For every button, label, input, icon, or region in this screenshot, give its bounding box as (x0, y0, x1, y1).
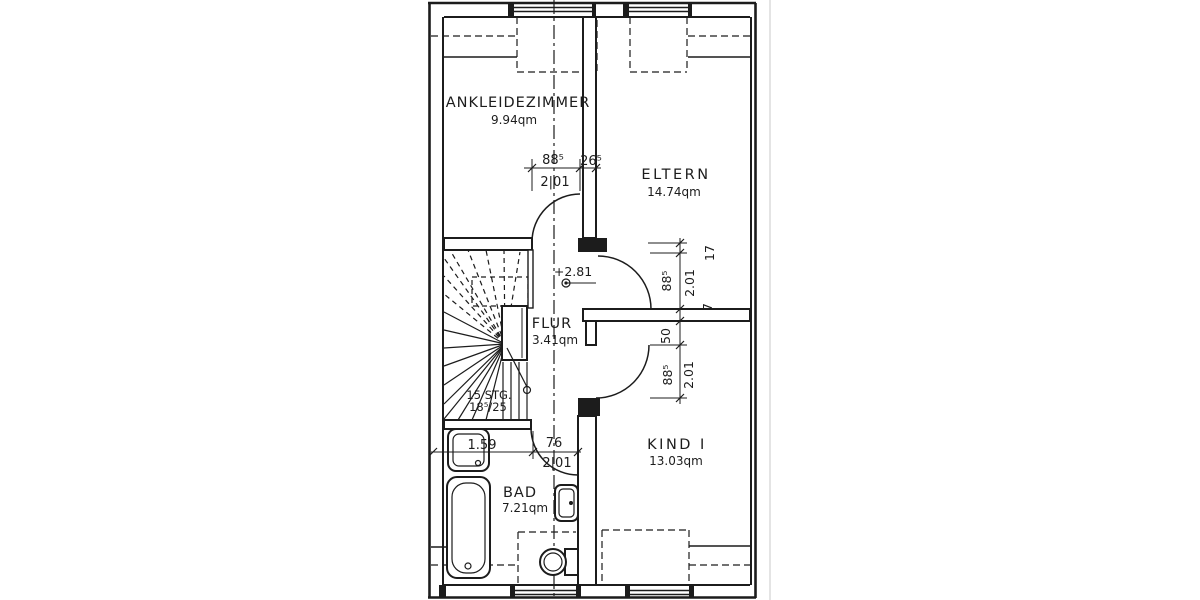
toilet (540, 549, 578, 575)
dim-bath-door-height: 2|01 (542, 456, 571, 471)
room-area-kind1: 13.03qm (649, 454, 703, 468)
room-label-bad: BAD (503, 485, 537, 501)
dim-eltern-door-width: 88⁵ (659, 271, 674, 292)
scanned-floor-plan-page: 15 STG. 18⁵/25 (0, 0, 1200, 600)
wall-pier-kind-door (578, 398, 600, 416)
room-area-bad: 7.21qm (502, 501, 548, 515)
level-marker-label: +2.81 (554, 264, 592, 279)
room-label-ankleidezimmer: ANKLEIDEZIMMER (446, 95, 591, 111)
dim-kind-door-height: 2.01 (681, 361, 696, 389)
dim-eltern-door-height: 2.01 (682, 269, 697, 297)
dim-kind-door-width: 88⁵ (660, 365, 675, 386)
dim-kind-offset: 50 (658, 328, 673, 344)
stair-newel-block (502, 306, 527, 360)
room-area-ankleidezimmer: 9.94qm (491, 113, 537, 127)
paper-background (0, 0, 1200, 600)
room-area-eltern: 14.74qm (647, 185, 701, 199)
dim-ankleide-door-offset: 26⁵ (580, 154, 602, 169)
dim-bath-fixture-width: 1.59 (468, 438, 497, 453)
floor-plan-drawing: 15 STG. 18⁵/25 (0, 0, 1200, 600)
wall-eltern-kind (583, 309, 750, 321)
room-label-kind1: KIND I (647, 437, 707, 453)
bathtub (447, 477, 490, 578)
dim-right-wall-offset: 7 (700, 303, 715, 311)
dim-right-top-offset: 17 (702, 245, 717, 261)
washbasin (555, 485, 578, 521)
wall-ankleide-flur (444, 238, 532, 250)
wall-flur-bad (444, 420, 531, 429)
room-label-flur: FLUR (532, 316, 572, 332)
wall-flur-kind (586, 321, 596, 345)
dim-ankleide-door-height: 2|01 (540, 175, 569, 190)
dim-ankleide-door-width: 88⁵ (542, 153, 564, 168)
dim-bath-door-width: 76 (546, 436, 563, 451)
wall-pier-eltern-door (578, 238, 607, 252)
stair-rise-run-label: 18⁵/25 (469, 400, 507, 414)
room-label-eltern: ELTERN (641, 167, 710, 183)
wall-stair-flur (528, 250, 533, 308)
room-area-flur: 3.41qm (532, 333, 578, 347)
wall-bad-kind (578, 416, 596, 585)
wall-ankleide-eltern (583, 17, 596, 238)
